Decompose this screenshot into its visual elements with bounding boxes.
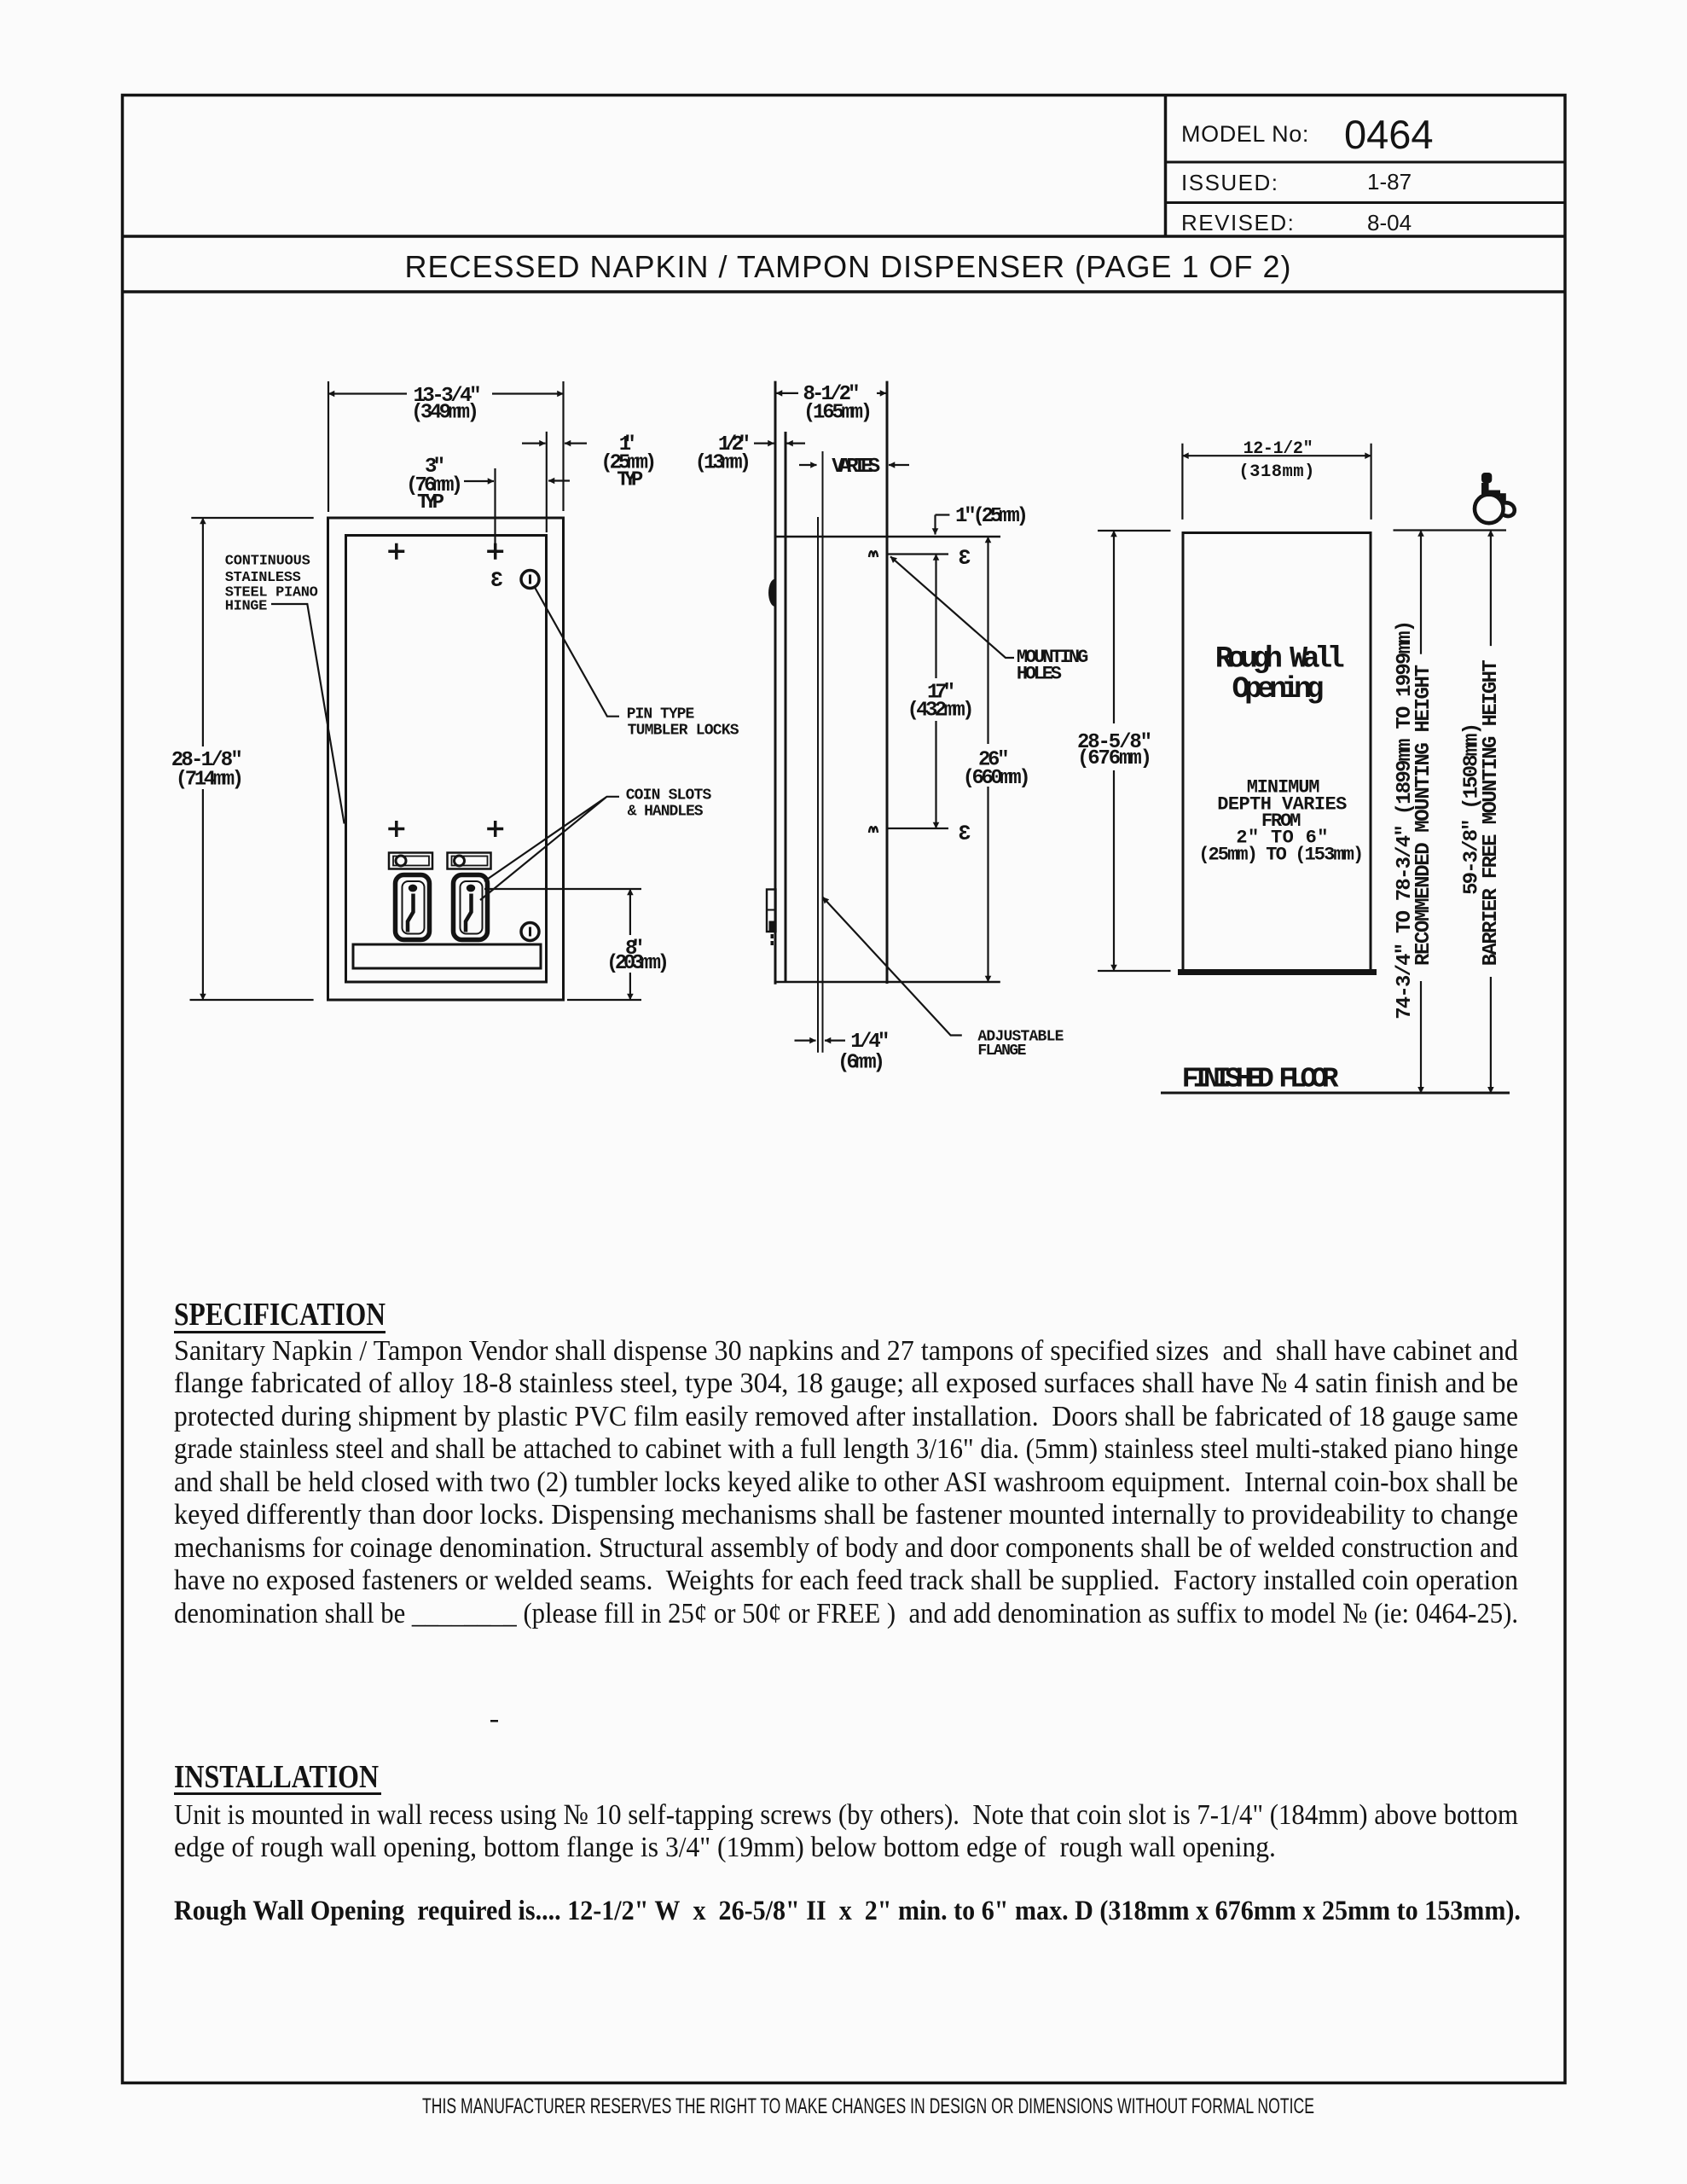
svg-text:1/4": 1/4" — [850, 1031, 890, 1054]
svg-text:HOLES: HOLES — [1017, 664, 1062, 685]
svg-text:BARRIER FREE MOUNTING HEIGHT: BARRIER FREE MOUNTING HEIGHT — [1480, 659, 1503, 966]
svg-text:(203mm): (203mm) — [606, 952, 670, 975]
svg-text:CONTINUOUS: CONTINUOUS — [225, 553, 310, 569]
svg-text:(660mm): (660mm) — [963, 767, 1031, 790]
svg-text:TUMBLER LOCKS: TUMBLER LOCKS — [628, 723, 739, 740]
svg-text:1-87: 1-87 — [1367, 169, 1412, 195]
svg-text:(165mm): (165mm) — [803, 402, 872, 425]
svg-text:FINISHED FLOOR: FINISHED FLOOR — [1182, 1063, 1339, 1095]
svg-text:TYP: TYP — [417, 491, 444, 514]
svg-text:(13mm): (13mm) — [695, 452, 751, 475]
svg-text:PIN TYPE: PIN TYPE — [627, 706, 695, 723]
svg-text:(318mm): (318mm) — [1238, 462, 1314, 482]
svg-text:3: 3 — [958, 822, 971, 846]
svg-text:(676mm): (676mm) — [1077, 747, 1152, 770]
svg-text:ISSUED:: ISSUED: — [1181, 170, 1279, 195]
svg-text:0464: 0464 — [1344, 112, 1434, 157]
svg-text:RECESSED NAPKIN / TAMPON DISPE: RECESSED NAPKIN / TAMPON DISPENSER (PAGE… — [405, 249, 1291, 284]
svg-text:& HANDLES: & HANDLES — [628, 803, 704, 820]
svg-text:VARIES: VARIES — [832, 456, 880, 479]
svg-text:(432mm): (432mm) — [907, 700, 975, 723]
svg-text:HINGE: HINGE — [225, 599, 268, 615]
svg-text:1"(25mm): 1"(25mm) — [955, 505, 1029, 528]
svg-text:(714mm): (714mm) — [176, 769, 244, 792]
svg-text:TYP: TYP — [617, 469, 643, 492]
svg-text:(349mm): (349mm) — [411, 402, 479, 425]
svg-text:COIN SLOTS: COIN SLOTS — [626, 787, 712, 804]
svg-text:Opening: Opening — [1232, 672, 1325, 706]
svg-text:THIS MANUFACTURER RESERVES THE: THIS MANUFACTURER RESERVES THE RIGHT TO … — [422, 2094, 1314, 2118]
svg-text:(25mm) TO (153mm): (25mm) TO (153mm) — [1198, 844, 1364, 865]
svg-text:REVISED:: REVISED: — [1181, 210, 1295, 235]
svg-text:8-04: 8-04 — [1367, 210, 1412, 235]
svg-text:Rough Wall: Rough Wall — [1215, 642, 1345, 677]
svg-text:STAINLESS: STAINLESS — [225, 570, 301, 586]
svg-text:MODEL No:: MODEL No: — [1181, 121, 1309, 147]
svg-text:3: 3 — [490, 568, 503, 593]
svg-text:3: 3 — [958, 546, 971, 571]
svg-text:FLANGE: FLANGE — [977, 1043, 1026, 1060]
svg-text:12-1/2": 12-1/2" — [1244, 439, 1313, 459]
svg-text:(6mm): (6mm) — [838, 1051, 885, 1074]
svg-text:RECOMMENDED MOUNTING HEIGHT: RECOMMENDED MOUNTING HEIGHT — [1412, 665, 1435, 966]
